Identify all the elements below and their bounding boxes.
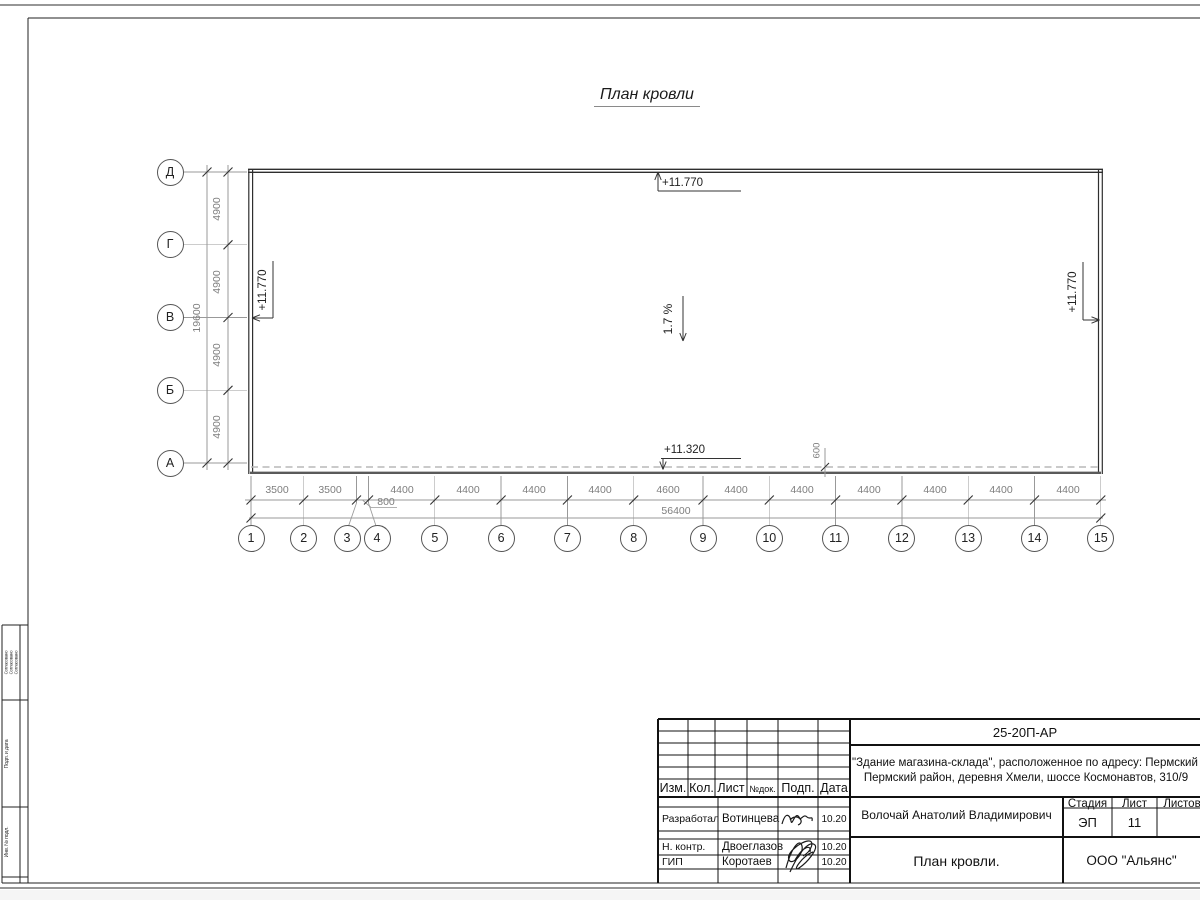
dimension-label: 4900	[211, 184, 223, 234]
drawing-title: План кровли	[594, 86, 700, 107]
name-developed: Вотинцева	[722, 813, 779, 825]
dimension-ticks	[203, 168, 1106, 523]
role-developed: Разработал	[662, 813, 719, 825]
dimension-label: 4900	[211, 257, 223, 307]
date-ncontrol: 10.20	[818, 842, 850, 853]
roof-outline	[248, 169, 1103, 474]
dimension-label: 4400	[706, 484, 766, 496]
axis-col-bubble-14: 14	[1021, 525, 1048, 552]
dimension-label: 3500	[247, 484, 307, 496]
axis-row-bubble-v: В	[157, 304, 184, 331]
axis-col-bubble-11: 11	[822, 525, 849, 552]
side-stamp-label-inv: Инв. № подл.	[4, 808, 10, 876]
role-ncontrol: Н. контр.	[662, 841, 705, 853]
dimension-total-label: 56400	[646, 505, 706, 517]
overhang-dim-label: 600	[812, 436, 823, 466]
stage-value: ЭП	[1063, 815, 1112, 830]
project-description-line1: "Здание магазина-склада", расположенное …	[852, 757, 1200, 769]
axis-row-bubble-a: А	[157, 450, 184, 477]
axis-row-bubble-b: Б	[157, 377, 184, 404]
dimension-label: 4400	[839, 484, 899, 496]
elevation-right-label: +11.770	[1067, 263, 1079, 321]
axis-col-bubble-5: 5	[421, 525, 448, 552]
column-header-list: Лист	[715, 781, 747, 795]
sheet-label: Лист	[1112, 798, 1157, 810]
slope-label: 1.7 %	[661, 297, 675, 341]
dimension-label-800: 800	[370, 496, 402, 508]
company-name: ООО "Альянс"	[1063, 853, 1200, 868]
sheets-label: Листов	[1157, 798, 1200, 810]
dimension-label: 4400	[1038, 484, 1098, 496]
client-name: Волочай Анатолий Владимирович	[850, 808, 1063, 822]
axis-row-bubble-d: Д	[157, 159, 184, 186]
column-header-doc: №док.	[747, 784, 778, 794]
dimension-label: 4900	[211, 330, 223, 380]
axis-col-bubble-1: 1	[238, 525, 265, 552]
axis-row-bubble-g: Г	[157, 231, 184, 258]
stage-label: Стадия	[1063, 798, 1112, 810]
dimension-label: 4400	[772, 484, 832, 496]
side-stamp-approval: Согласовано	[14, 629, 19, 697]
dimension-label: 4600	[638, 484, 698, 496]
dimension-label: 4400	[971, 484, 1031, 496]
dimension-label: 4400	[905, 484, 965, 496]
axis-col-bubble-9: 9	[690, 525, 717, 552]
column-header-data: Дата	[818, 781, 850, 795]
side-stamp-label-podp-data: Подп. и дата	[4, 718, 10, 790]
role-gip: ГИП	[662, 856, 683, 868]
axis-and-dim-lines	[184, 165, 1106, 530]
dimension-total-label: 19600	[191, 293, 203, 343]
column-header-izm: Изм.	[658, 781, 688, 795]
date-gip: 10.20	[818, 857, 850, 868]
column-header-kol: Кол.	[688, 781, 715, 795]
dimension-label: 4400	[570, 484, 630, 496]
document-number: 25-20П-АР	[850, 725, 1200, 740]
elevation-low-label: +11.320	[664, 444, 705, 456]
elevation-left-label: +11.770	[257, 261, 269, 319]
axis-col-bubble-7: 7	[554, 525, 581, 552]
dimension-label: 4400	[372, 484, 432, 496]
sheet-value: 11	[1112, 815, 1157, 830]
sheet-frame	[2, 18, 1200, 883]
elevation-marks	[252, 172, 1100, 470]
column-header-podp: Подп.	[778, 781, 818, 795]
name-ncontrol: Двоеглазов	[722, 841, 783, 853]
sheet-title: План кровли.	[850, 853, 1063, 869]
dimension-label: 3500	[300, 484, 360, 496]
signature-votintseva	[782, 815, 812, 825]
dimension-label: 4400	[504, 484, 564, 496]
axis-col-bubble-13: 13	[955, 525, 982, 552]
dimension-label: 4900	[211, 402, 223, 452]
axis-col-bubble-10: 10	[756, 525, 783, 552]
axis-col-bubble-4: 4	[364, 525, 391, 552]
dimension-label: 4400	[438, 484, 498, 496]
axis-col-bubble-2: 2	[290, 525, 317, 552]
date-developed: 10.20	[818, 814, 850, 825]
axis-col-bubble-15: 15	[1087, 525, 1114, 552]
project-description-line2: Пермский район, деревня Хмели, шоссе Кос…	[852, 772, 1200, 784]
axis-col-bubble-3: 3	[334, 525, 361, 552]
drawing-sheet: План кровли Д Г В Б А 1 2 3 4 5 6 7 8 9 …	[0, 0, 1200, 900]
axis-col-bubble-12: 12	[888, 525, 915, 552]
elevation-top-label: +11.770	[662, 177, 703, 189]
name-gip: Коротаев	[722, 856, 772, 868]
signature-dvoeglazov-korotaev	[786, 841, 816, 872]
axis-col-bubble-6: 6	[488, 525, 515, 552]
axis-col-bubble-8: 8	[620, 525, 647, 552]
